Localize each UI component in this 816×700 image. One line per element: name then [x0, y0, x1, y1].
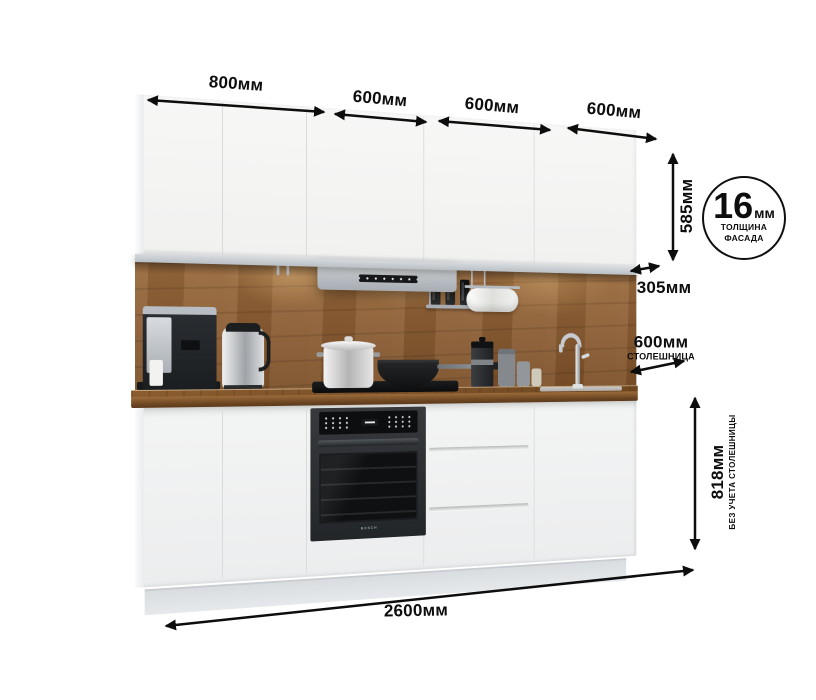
french-press-lid: [471, 341, 493, 347]
dim-height-818-label: 818мм БЕЗ УЧЕТА СТОЛЕШНИЦЫ: [709, 414, 737, 529]
oven-buttons-left: [324, 416, 352, 430]
oven-logo: BOSCH: [310, 522, 425, 533]
dim-depth-305-label: 305мм: [637, 278, 692, 298]
pot-lid: [321, 341, 376, 351]
oven: BOSCH: [310, 407, 425, 542]
oven-buttons-right: [388, 415, 415, 428]
dim-countertop-600-value: 600мм: [634, 334, 689, 353]
facade-thickness-unit: мм: [754, 205, 775, 221]
milk-container: [149, 360, 162, 386]
coffee-machine: [143, 306, 217, 390]
jar: [531, 368, 541, 386]
dim-width-800-label: 800мм: [208, 72, 264, 96]
base-door-seam: [222, 411, 223, 579]
facade-thickness-value-row: 16 мм: [713, 191, 775, 222]
rail-hook: [277, 266, 280, 276]
upper-door-seam: [423, 117, 424, 261]
rail-hook: [287, 266, 290, 276]
kitchen-perspective-wrapper: BOSCH: [135, 94, 636, 618]
upper-door-seam: [306, 108, 307, 257]
facade-thickness-caption2: ФАСАДА: [724, 233, 763, 244]
hood-control-panel: [359, 274, 418, 283]
dim-width-600a-label: 600мм: [352, 87, 408, 112]
canister: [498, 349, 515, 387]
dim-countertop-600-label: 600мм СТОЛЕШНИЦА: [627, 334, 695, 363]
base-cabinet-side-panel: [135, 408, 144, 588]
facade-thickness-value: 16: [713, 191, 753, 222]
dim-countertop-caption: СТОЛЕШНИЦА: [627, 352, 695, 362]
base-door-seam: [534, 406, 535, 559]
upper-door-seam: [222, 102, 223, 254]
faucet-lever: [581, 353, 590, 359]
kettle-base: [224, 385, 262, 389]
oven-control-panel: [319, 410, 417, 434]
kitchen-render: BOSCH: [135, 94, 636, 618]
pot-handle: [373, 352, 380, 357]
faucet: [559, 333, 592, 388]
paper-towel-roll: [466, 288, 518, 312]
base-door-seam: [306, 409, 307, 573]
dim-total-2600-label: 2600мм: [384, 600, 449, 621]
coffee-machine-top: [143, 306, 217, 315]
dim-height-585-label: 585мм: [677, 179, 697, 234]
faucet-spout-end: [559, 345, 563, 353]
oven-display: [361, 418, 380, 428]
faucet-base: [572, 384, 582, 388]
kettle-lid: [226, 323, 261, 332]
dim-width-600b-label: 600мм: [464, 94, 520, 119]
cooking-pot: [324, 347, 374, 389]
french-press-knob: [479, 337, 485, 342]
dim-countertop-600-arrow: [631, 361, 684, 372]
facade-thickness-caption1: ТОЛЩИНА: [721, 222, 768, 233]
kitchen-dimension-diagram: BOSCH 800мм 600мм 600мм 600мм 585мм 305м…: [0, 0, 816, 700]
french-press-band: [471, 360, 493, 365]
coffee-spout: [181, 340, 200, 350]
dim-height-818-caption: БЕЗ УЧЕТА СТОЛЕШНИЦЫ: [728, 414, 737, 529]
faucet-column: [575, 344, 579, 386]
upper-cabinets: [135, 94, 636, 268]
facade-thickness-badge: 16 мм ТОЛЩИНА ФАСАДА: [702, 176, 786, 260]
pot-lid-knob: [344, 336, 353, 342]
kettle-handle: [259, 331, 271, 372]
pot-handle: [317, 352, 324, 357]
upper-door-seam: [534, 125, 535, 264]
dim-width-600c-label: 600мм: [586, 99, 642, 124]
canister: [517, 361, 530, 386]
french-press: [471, 341, 493, 386]
dim-height-818-value: 818мм: [709, 445, 728, 500]
oven-handle: [317, 438, 419, 447]
upper-cabinet-side-panel: [135, 94, 144, 254]
kettle: [222, 327, 264, 389]
oven-window: [319, 451, 417, 524]
